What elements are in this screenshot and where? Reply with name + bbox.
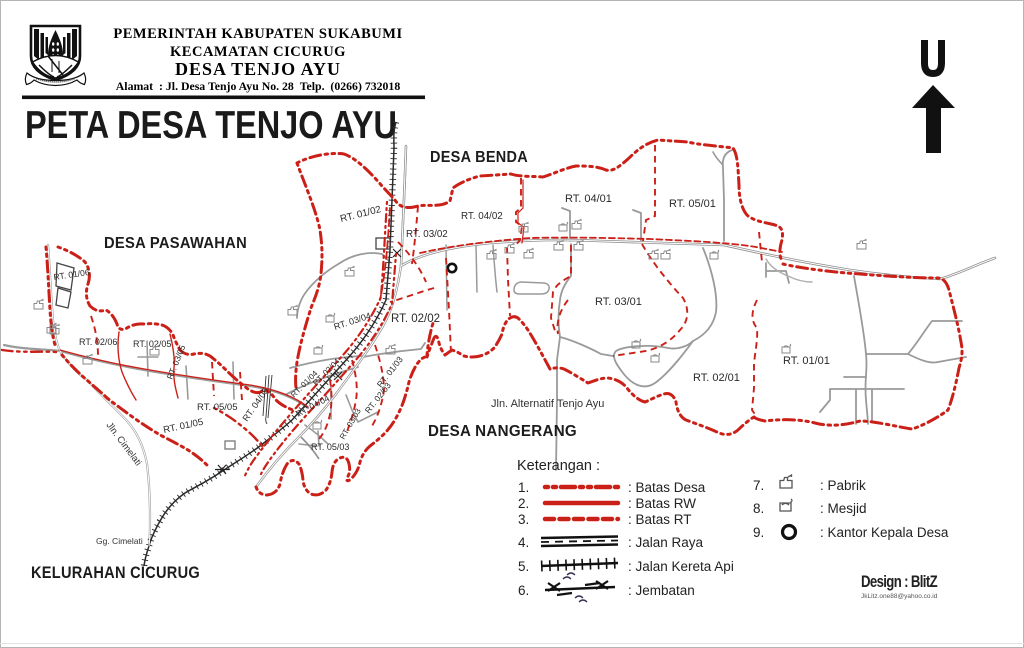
svg-text:RT. 03/01: RT. 03/01 bbox=[595, 296, 642, 308]
svg-text:RT. 03/02: RT. 03/02 bbox=[406, 229, 448, 240]
svg-text:Jln. Cimelati: Jln. Cimelati bbox=[104, 420, 144, 468]
svg-text:1.: 1. bbox=[518, 480, 529, 495]
svg-text:: Jalan Raya: : Jalan Raya bbox=[628, 535, 704, 550]
svg-text:RT. 03/03: RT. 03/03 bbox=[338, 406, 363, 441]
svg-text:DESA NANGERANG: DESA NANGERANG bbox=[428, 423, 577, 440]
svg-text:Alamat : Jl. Desa Tenjo Ayu N: Alamat : Jl. Desa Tenjo Ayu No. 28 Telp.… bbox=[116, 79, 401, 93]
svg-text:: Jembatan: : Jembatan bbox=[628, 583, 695, 598]
svg-text:DESA BENDA: DESA BENDA bbox=[430, 149, 528, 166]
svg-text:: Jalan Kereta Api: : Jalan Kereta Api bbox=[628, 559, 734, 574]
svg-text:RT. 04/02: RT. 04/02 bbox=[461, 211, 503, 222]
svg-text:RT. 04/01: RT. 04/01 bbox=[565, 193, 612, 205]
svg-text:PETA DESA TENJO AYU: PETA DESA TENJO AYU bbox=[25, 104, 397, 147]
svg-text:RT. 05/03: RT. 05/03 bbox=[311, 442, 349, 452]
svg-text:RT. 05/01: RT. 05/01 bbox=[669, 198, 716, 210]
svg-text:2.: 2. bbox=[518, 496, 529, 511]
svg-text:RT. 01/01: RT. 01/01 bbox=[783, 355, 830, 367]
svg-text:: Batas Desa: : Batas Desa bbox=[628, 480, 706, 495]
svg-text:DESA TENJO AYU: DESA TENJO AYU bbox=[175, 59, 341, 79]
svg-text:: Pabrik: : Pabrik bbox=[820, 478, 866, 493]
svg-text:Design : BlitZ: Design : BlitZ bbox=[861, 573, 938, 591]
svg-text:RT. 01/06: RT. 01/06 bbox=[53, 267, 91, 282]
svg-text:9.: 9. bbox=[753, 525, 764, 540]
svg-text:Gg. Cimelati: Gg. Cimelati bbox=[96, 536, 143, 546]
svg-text:RT. 05/05: RT. 05/05 bbox=[197, 402, 238, 413]
svg-text:RT. 01/05: RT. 01/05 bbox=[162, 417, 204, 436]
svg-text:JkLitz.one88@yahoo.co.id: JkLitz.one88@yahoo.co.id bbox=[861, 593, 938, 600]
svg-text:: Batas RW: : Batas RW bbox=[628, 496, 696, 511]
svg-text:Keterangan :: Keterangan : bbox=[517, 458, 600, 474]
svg-text:Jln. Alternatif Tenjo Ayu: Jln. Alternatif Tenjo Ayu bbox=[491, 398, 604, 410]
svg-text:: Batas RT: : Batas RT bbox=[628, 512, 692, 527]
svg-text:RT. 02/01: RT. 02/01 bbox=[693, 372, 740, 384]
svg-text:RT. 01/02: RT. 01/02 bbox=[339, 204, 382, 225]
svg-text:8.: 8. bbox=[753, 501, 764, 516]
svg-text:KECAMATAN CICURUG: KECAMATAN CICURUG bbox=[170, 44, 346, 60]
svg-text:4.: 4. bbox=[518, 535, 529, 550]
svg-text:: Mesjid: : Mesjid bbox=[820, 501, 867, 516]
svg-text:RT. 03/04: RT. 03/04 bbox=[333, 311, 373, 332]
svg-text:DESA PASAWAHAN: DESA PASAWAHAN bbox=[104, 235, 247, 252]
svg-text:: Kantor Kepala Desa: : Kantor Kepala Desa bbox=[820, 525, 949, 540]
svg-text:5.: 5. bbox=[518, 559, 529, 574]
svg-text:RT. 02/05: RT. 02/05 bbox=[133, 339, 171, 349]
svg-text:RT. 02/02: RT. 02/02 bbox=[391, 313, 440, 325]
svg-text:6.: 6. bbox=[518, 583, 529, 598]
svg-text:RT. 02/06: RT. 02/06 bbox=[79, 337, 117, 347]
svg-text:7.: 7. bbox=[753, 478, 764, 493]
svg-text:KELURAHAN CICURUG: KELURAHAN CICURUG bbox=[31, 564, 200, 582]
svg-text:PEMERINTAH KABUPATEN SUKABUMI: PEMERINTAH KABUPATEN SUKABUMI bbox=[113, 26, 402, 42]
svg-text:3.: 3. bbox=[518, 512, 529, 527]
